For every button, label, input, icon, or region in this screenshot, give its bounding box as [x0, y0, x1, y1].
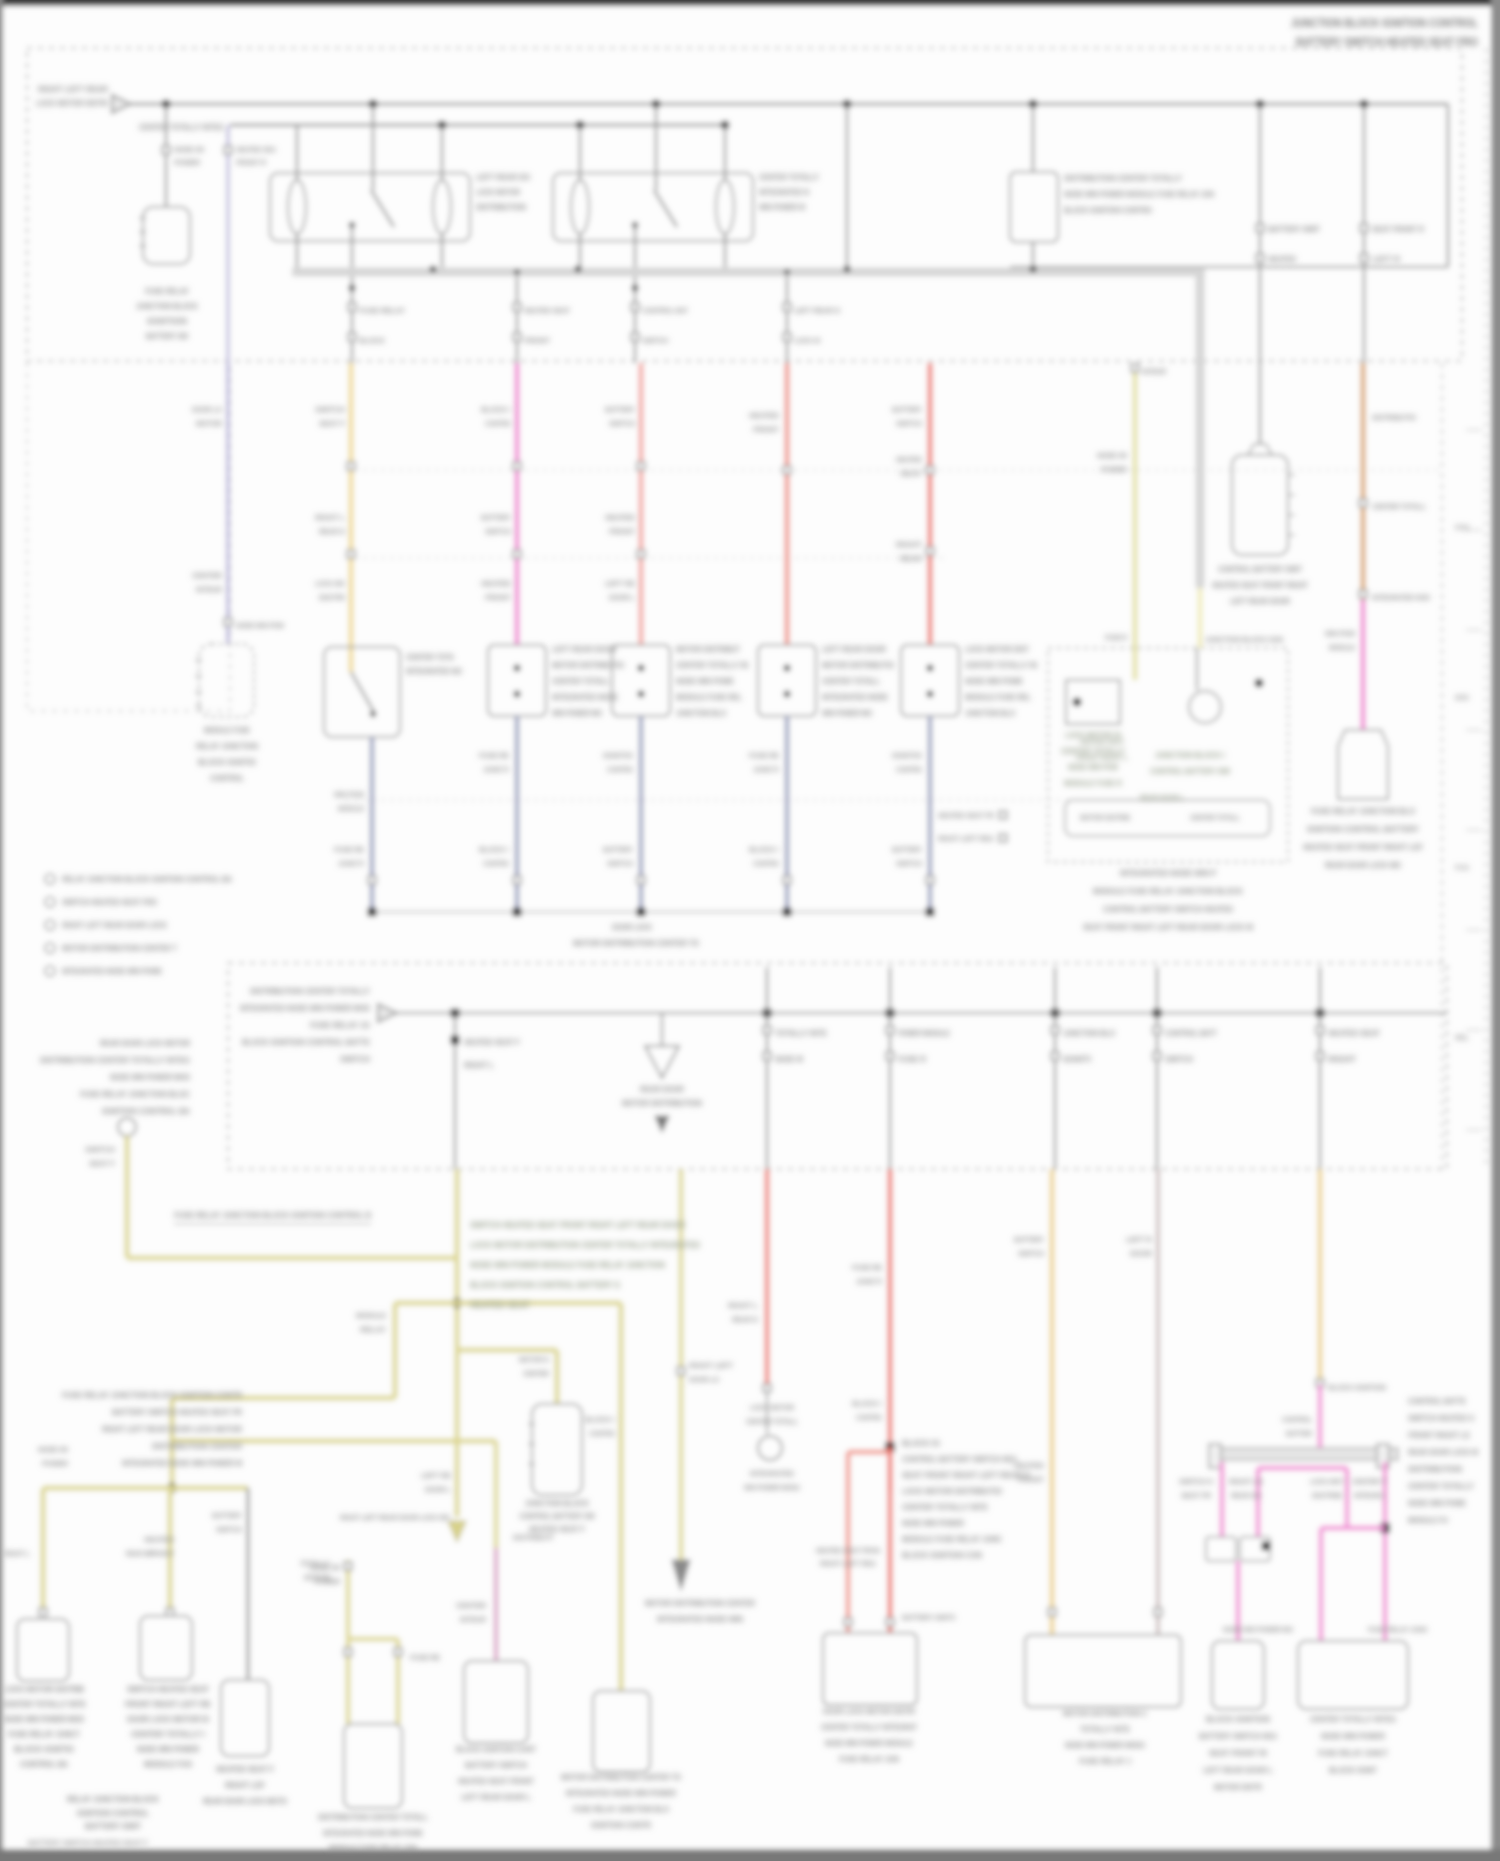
- svg-text:HEATED SEAT FR: HEATED SEAT FR: [938, 811, 995, 820]
- svg-text:FRONT: FRONT: [753, 425, 779, 434]
- svg-text:NODE WIN POW: NODE WIN POW: [236, 621, 285, 630]
- svg-text:IGNITION CONTROL BA: IGNITION CONTROL BA: [102, 1106, 190, 1116]
- svg-text:WIN POW: WIN POW: [1325, 629, 1356, 638]
- svg-text:FUSE RELAY JUN: FUSE RELAY JUN: [839, 1755, 899, 1764]
- svg-text:IGNITION CONTROL: IGNITION CONTROL: [77, 1808, 149, 1818]
- svg-text:DISTRIBUTIO: DISTRIBUTIO: [1372, 413, 1416, 422]
- svg-text:MODULE FUSE RELAY JUNC: MODULE FUSE RELAY JUNC: [902, 1534, 1002, 1544]
- svg-text:BATTER: BATTER: [1286, 1429, 1313, 1438]
- svg-text:FUSE RELAY JUNCT: FUSE RELAY JUNCT: [1318, 1749, 1388, 1758]
- svg-text:HEATED SEAT F: HEATED SEAT F: [216, 1764, 274, 1774]
- svg-text:LEFT REAR DOOR L: LEFT REAR DOOR L: [1203, 1766, 1273, 1775]
- svg-text:DISTRI: DISTRI: [319, 593, 345, 602]
- svg-text:DISTRIBUTI: DISTRIBUTI: [513, 1533, 553, 1542]
- svg-text:REAR DOOR LOCK M: REAR DOOR LOCK M: [1408, 1448, 1478, 1457]
- svg-text:LOCK MOTOR DIST: LOCK MOTOR DIST: [965, 645, 1029, 654]
- svg-text:HEATED SEAT F: HEATED SEAT F: [529, 1525, 585, 1534]
- svg-text:POW: POW: [1455, 525, 1469, 532]
- svg-text:IGNITION CONTROL BATTERY: IGNITION CONTROL BATTERY: [1307, 824, 1419, 834]
- svg-text:DISTRIBUTION CENTER TOTALLY IN: DISTRIBUTION CENTER TOTALLY INTEG: [40, 1055, 190, 1065]
- svg-text:HEATED: HEATED: [896, 455, 922, 464]
- svg-text:INTEGRATED NODE: INTEGRATED NODE: [822, 693, 889, 702]
- svg-text:NODE WIN POWER MODULE: NODE WIN POWER MODULE: [825, 1739, 914, 1748]
- svg-text:RIGHT LEFT REAR DOOR LOCK MO: RIGHT LEFT REAR DOOR LOCK MO: [340, 1513, 450, 1522]
- svg-text:IGNITI: IGNITI: [1063, 1055, 1091, 1064]
- svg-text:INTEGR: INTEGR: [304, 1573, 331, 1582]
- svg-text:SWITCH: SWITCH: [896, 419, 922, 428]
- svg-text:CONTROL BA: CONTROL BA: [20, 1759, 68, 1769]
- svg-text:FRONT RIGHT LEFT RE: FRONT RIGHT LEFT RE: [125, 1699, 211, 1709]
- svg-text:RIGHT L: RIGHT L: [4, 1551, 31, 1558]
- svg-text:INTEGRATED NODE WIN P: INTEGRATED NODE WIN P: [1120, 868, 1216, 878]
- svg-text:POWER: POWER: [1101, 465, 1128, 474]
- svg-text:FUSE R: FUSE R: [1105, 635, 1127, 642]
- svg-text:BATTERY: BATTERY: [603, 845, 633, 854]
- svg-text:HEATED SEAT FRON: HEATED SEAT FRON: [816, 1546, 880, 1555]
- svg-text:CENTER TOTALLY INTEG: CENTER TOTALLY INTEG: [139, 123, 224, 132]
- svg-text:INTEGRATED NODE WIN: INTEGRATED NODE WIN: [657, 1615, 743, 1624]
- svg-text:MODULE FUS: MODULE FUS: [144, 1759, 192, 1769]
- svg-text:INTEGRATED NODE: INTEGRATED NODE: [552, 693, 619, 702]
- svg-text:LEFT REAR DO: LEFT REAR DO: [476, 173, 530, 182]
- svg-text:INTEGRATED NODE WIN POWER MOD: INTEGRATED NODE WIN POWER MOD: [240, 1003, 370, 1013]
- svg-text:CONTROL: CONTROL: [210, 774, 244, 783]
- svg-text:CENTER TOTALLY: CENTER TOTALLY: [759, 173, 820, 182]
- svg-text:MOTOR DISTRIB: MOTOR DISTRIB: [1080, 815, 1130, 822]
- svg-text:REAR DOOR L: REAR DOOR L: [1140, 793, 1184, 802]
- svg-text:MOTOR DISTRIBUTION CENTER TO: MOTOR DISTRIBUTION CENTER TO: [573, 938, 699, 948]
- svg-text:BATTERY: BATTERY: [481, 513, 511, 522]
- svg-text:FUSE RELAY JU: FUSE RELAY JU: [310, 1020, 370, 1030]
- svg-text:BATTERY SWITCH HEATED SEAT FR: BATTERY SWITCH HEATED SEAT FR: [112, 1407, 242, 1417]
- svg-text:RELAY JUNCTION: RELAY JUNCTION: [196, 742, 258, 751]
- svg-text:DISTRIBUTION CENTER: DISTRIBUTION CENTER: [152, 1441, 242, 1451]
- svg-text:MOTOR DISTRIBUTION CENTER T: MOTOR DISTRIBUTION CENTER T: [62, 944, 177, 953]
- svg-text:BLOCK I: BLOCK I: [481, 405, 511, 414]
- svg-text:FUSE RE: FUSE RE: [749, 751, 779, 760]
- svg-text:CENTER: CENTER: [456, 1601, 487, 1610]
- svg-text:SWITCH: SWITCH: [216, 1525, 242, 1534]
- svg-text:REAR D: REAR D: [319, 527, 346, 536]
- svg-text:HEATED SEAT FRONT RIGHT LEF: HEATED SEAT FRONT RIGHT LEF: [1303, 842, 1423, 852]
- svg-text:REAR: REAR: [900, 554, 923, 563]
- svg-text:INTEGR: INTEGR: [196, 585, 223, 594]
- svg-text:BATTERY: BATTERY: [605, 405, 635, 414]
- svg-text:INTEGRATED NODE WIN POWE: INTEGRATED NODE WIN POWE: [62, 967, 163, 976]
- svg-text:SWITCH: SWITCH: [1018, 1249, 1044, 1258]
- svg-text:MODULE FUSE RELAY JUNCTION BLO: MODULE FUSE RELAY JUNCTION BLOCK: [1093, 886, 1244, 896]
- svg-text:DOOR: DOOR: [1130, 1249, 1153, 1258]
- svg-text:DISTRIB: DISTRIB: [1312, 1491, 1343, 1500]
- svg-text:CONTRO: CONTRO: [589, 1429, 615, 1438]
- svg-text:SWITCH HEATED SEAT FRO: SWITCH HEATED SEAT FRO: [62, 898, 157, 907]
- svg-text:BATTERY SWITCH HEATED SEAT F: BATTERY SWITCH HEATED SEAT F: [28, 1839, 148, 1848]
- svg-text:CENTER TOTA: CENTER TOTA: [406, 653, 454, 662]
- svg-text:BATTERY: BATTERY: [892, 405, 922, 414]
- svg-text:REL: REL: [1455, 1035, 1470, 1042]
- svg-text:POWER: POWER: [42, 1459, 69, 1468]
- svg-text:REAR DO: REAR DO: [126, 1551, 152, 1558]
- svg-text:TOTALLY INTE: TOTALLY INTE: [1080, 1725, 1131, 1734]
- svg-text:INTEGR: INTEGR: [1142, 367, 1166, 376]
- svg-text:JUNCTI: JUNCTI: [338, 859, 364, 868]
- svg-text:POWER: POWER: [174, 158, 201, 167]
- svg-text:SEAT FR: SEAT FR: [1181, 1491, 1212, 1500]
- svg-text:BATTERY SWITCH HEA: BATTERY SWITCH HEA: [1199, 1732, 1277, 1741]
- svg-text:SWITCH: SWITCH: [340, 1054, 370, 1064]
- svg-text:CONTROL: CONTROL: [1282, 1415, 1312, 1424]
- svg-text:RIGHT: RIGHT: [1328, 1055, 1356, 1064]
- svg-text:SEAT F: SEAT F: [319, 419, 345, 428]
- svg-text:MODULE: MODULE: [1329, 643, 1355, 652]
- svg-text:NODE WIN POWER MO: NODE WIN POWER MO: [1223, 1625, 1293, 1634]
- svg-text:REAR DOOR LOCK MOTO: REAR DOOR LOCK MOTO: [203, 1796, 287, 1806]
- svg-text:SWITCH: SWITCH: [609, 419, 635, 428]
- svg-text:BLOCK IGNIT: BLOCK IGNIT: [1329, 1766, 1377, 1775]
- svg-text:NODE WIN POWER: NODE WIN POWER: [902, 1518, 964, 1528]
- svg-text:CENTER TOTALL: CENTER TOTALL: [1190, 815, 1241, 822]
- svg-text:MODULE: MODULE: [338, 804, 364, 813]
- svg-text:JUNCTION BLO: JUNCTION BLO: [965, 709, 1015, 718]
- svg-text:FUSE RELAY JUNCTION BLOCK IGNI: FUSE RELAY JUNCTION BLOCK IGNITION CONTR: [62, 1390, 242, 1400]
- svg-text:MOTOR D: MOTOR D: [519, 1355, 549, 1364]
- svg-text:INTEGRATED: INTEGRATED: [750, 1469, 795, 1478]
- svg-text:BLOCK IG: BLOCK IG: [902, 1438, 940, 1448]
- svg-text:BATTERY SW: BATTERY SW: [146, 332, 188, 341]
- svg-text:BLOCK IGNITION: BLOCK IGNITION: [1328, 1383, 1386, 1392]
- svg-text:FUSE RE: FUSE RE: [852, 1263, 882, 1272]
- svg-text:HEATED: HEATED: [481, 579, 512, 588]
- svg-text:BLOCK I: BLOCK I: [749, 845, 779, 854]
- svg-text:LOCK MOTOR DISTRIB: LOCK MOTOR DISTRIB: [4, 1684, 84, 1694]
- svg-text:RELAY JUNCTION BLOCK: RELAY JUNCTION BLOCK: [67, 1794, 160, 1804]
- svg-text:SEAT FRONT RI: SEAT FRONT RI: [1209, 1749, 1267, 1758]
- svg-text:INTEGRA: INTEGRA: [1354, 1491, 1385, 1500]
- svg-text:CENTER TOTALLY INTE: CENTER TOTALLY INTE: [902, 1502, 988, 1512]
- svg-text:BATTERY SWITCH HEATED SEAT FRO: BATTERY SWITCH HEATED SEAT FRO: [1296, 37, 1478, 49]
- svg-text:SWITCH HEATED SEAT: SWITCH HEATED SEAT: [127, 1684, 210, 1694]
- svg-text:SWITCH: SWITCH: [607, 859, 633, 868]
- svg-text:MODULE FUSE R: MODULE FUSE R: [1064, 779, 1122, 788]
- svg-text:NODE WIN POWER MODU: NODE WIN POWER MODU: [1065, 1741, 1145, 1750]
- svg-text:CONTRO: CONTRO: [485, 419, 511, 428]
- svg-text:LEFT REAR DOOR: LEFT REAR DOOR: [822, 645, 886, 654]
- svg-text:FUSE RELAY JUNC: FUSE RELAY JUNC: [1368, 1625, 1429, 1634]
- svg-text:LEFT REAR DOOR: LEFT REAR DOOR: [552, 645, 616, 654]
- svg-text:BATTERY SWIT: BATTERY SWIT: [85, 1821, 142, 1831]
- svg-text:BATTERY: BATTERY: [212, 1511, 242, 1520]
- svg-text:INTEGR: INTEGR: [460, 1615, 487, 1624]
- svg-text:HEATED: HEATED: [144, 1535, 175, 1544]
- svg-text:CENTER: CENTER: [523, 1369, 549, 1378]
- svg-text:LOCK MOTOR: LOCK MOTOR: [476, 188, 520, 197]
- svg-text:NODE WIN POWER MODULE FUSE REL: NODE WIN POWER MODULE FUSE RELAY JUN: [1064, 190, 1214, 199]
- svg-text:LOCK MOTOR DISTRI: LOCK MOTOR DISTRI: [36, 99, 108, 108]
- svg-text:JUNCTION BLOCK: JUNCTION BLOCK: [136, 302, 198, 311]
- svg-text:CONTROL BATTERY SWI: CONTROL BATTERY SWI: [1150, 767, 1230, 776]
- svg-text:RIGHT: RIGHT: [896, 540, 922, 549]
- svg-text:FUSE R: FUSE R: [898, 1055, 926, 1064]
- svg-text:BLOCK I: BLOCK I: [585, 1415, 615, 1424]
- svg-text:MOTOR DISTRIBUTIO: MOTOR DISTRIBUTIO: [552, 661, 624, 670]
- svg-text:CENTER: CENTER: [192, 571, 223, 580]
- svg-text:JUNCTI: JUNCTI: [856, 1277, 882, 1286]
- svg-text:RIGHT LEFT REA: RIGHT LEFT REA: [820, 1559, 877, 1568]
- svg-text:HEATED: HEATED: [749, 411, 780, 420]
- svg-text:FRONT: FRONT: [524, 336, 550, 345]
- svg-text:MODULE FU: MODULE FU: [1408, 1516, 1448, 1525]
- svg-text:RIGHT LEFT REAR: RIGHT LEFT REAR: [38, 85, 108, 94]
- svg-text:CONTRO: CONTRO: [483, 859, 509, 868]
- svg-text:BLOCK IGNITIO: BLOCK IGNITIO: [198, 758, 256, 767]
- svg-text:RIGHT L: RIGHT L: [728, 1301, 758, 1310]
- svg-text:NODE WI: NODE WI: [38, 1445, 68, 1454]
- svg-text:DOOR LO: DOOR LO: [192, 405, 222, 414]
- svg-text:REAR DOOR LOCK MOTOR: REAR DOOR LOCK MOTOR: [100, 1038, 190, 1048]
- svg-text:JUNCTION BLOCK I: JUNCTION BLOCK I: [1155, 751, 1225, 760]
- svg-text:RIGHT L: RIGHT L: [315, 513, 345, 522]
- svg-text:BATTERY SWITC: BATTERY SWITC: [902, 1613, 957, 1622]
- svg-text:BLOCK IGNITION CON: BLOCK IGNITION CON: [902, 1550, 982, 1560]
- svg-text:NODE WIN POW: NODE WIN POW: [1068, 763, 1118, 772]
- svg-text:CONTRO: CONTRO: [856, 1413, 882, 1422]
- svg-text:SEAT FRONT RIGHT LEFT REAR DOO: SEAT FRONT RIGHT LEFT REAR DOOR LOCK M: [1083, 922, 1253, 932]
- svg-text:NODE WIN POWE: NODE WIN POWE: [1408, 1499, 1467, 1508]
- svg-text:FUSE RELAY: FUSE RELAY: [359, 306, 405, 315]
- svg-text:RIGHT LEFT REAR DOOR LOCK: RIGHT LEFT REAR DOOR LOCK: [62, 921, 167, 930]
- svg-text:FUSE RELAY JUNCTION BLO: FUSE RELAY JUNCTION BLO: [573, 1805, 669, 1814]
- svg-text:NODE WIN POWER MODULE FUSE REL: NODE WIN POWER MODULE FUSE RELAY JUNCTIO…: [470, 1260, 665, 1270]
- svg-text:BLOCK IGNITION: BLOCK IGNITION: [1206, 1715, 1270, 1724]
- svg-text:BATTERY SWIT: BATTERY SWIT: [1268, 225, 1320, 234]
- svg-text:IGNITIO: IGNITIO: [603, 751, 633, 760]
- svg-text:SWITCH: SWITCH: [485, 527, 511, 536]
- svg-text:BLOCK IGNITION CONTROL BATTE: BLOCK IGNITION CONTROL BATTE: [242, 1037, 370, 1047]
- svg-text:LEFT RE: LEFT RE: [605, 579, 635, 588]
- svg-text:LEFT R: LEFT R: [1126, 1235, 1153, 1244]
- svg-text:NODE WI: NODE WI: [174, 145, 204, 154]
- svg-text:SEAT FRONT RIGHT LEFT REAR D: SEAT FRONT RIGHT LEFT REAR D: [902, 1470, 1030, 1480]
- svg-text:CENTER TOTALL: CENTER TOTALL: [1372, 502, 1426, 511]
- svg-text:IGNITIO: IGNITIO: [892, 751, 922, 760]
- svg-text:MODULE: MODULE: [356, 1311, 386, 1320]
- svg-text:SEAT F: SEAT F: [89, 1159, 115, 1168]
- svg-text:CENTER TOTALLY INTEG: CENTER TOTALLY INTEG: [1310, 1715, 1396, 1724]
- svg-text:DOOR LOCK: DOOR LOCK: [612, 922, 653, 932]
- svg-text:FRONT RIGHT LE: FRONT RIGHT LE: [1408, 1431, 1471, 1440]
- svg-text:RIGHT LEFT REA: RIGHT LEFT REA: [938, 834, 995, 843]
- svg-text:MOD: MOD: [1455, 695, 1469, 702]
- svg-text:BLOCK I: BLOCK I: [479, 845, 509, 854]
- svg-text:FUSE RE: FUSE RE: [479, 751, 509, 760]
- svg-text:DISTRIBUTION CENTER TOTALL: DISTRIBUTION CENTER TOTALL: [318, 1813, 428, 1822]
- svg-text:CONTROL BATTERY SW: CONTROL BATTERY SW: [520, 1512, 595, 1521]
- svg-text:MODULE FUSE REL: MODULE FUSE REL: [965, 693, 1031, 702]
- svg-text:RIGHT LEFT REAR DOOR LOCK MOTO: RIGHT LEFT REAR DOOR LOCK MOTOR: [102, 1424, 242, 1434]
- svg-text:WIN POW: WIN POW: [334, 790, 365, 799]
- svg-text:FRONT: FRONT: [485, 593, 511, 602]
- svg-text:BLOCK IGNITIO: BLOCK IGNITIO: [14, 1744, 74, 1754]
- svg-text:POWER MODULE: POWER MODULE: [898, 1029, 951, 1038]
- svg-text:FUSE RELAY J: FUSE RELAY J: [1079, 1757, 1131, 1766]
- svg-text:CENTER TOTALLY INTE: CENTER TOTALLY INTE: [2, 1699, 86, 1709]
- svg-text:TOTALLY INTE: TOTALLY INTE: [775, 1029, 828, 1038]
- svg-text:CONTROL BAT: CONTROL BAT: [642, 306, 688, 315]
- svg-text:CONTRO: CONTRO: [896, 765, 922, 774]
- svg-text:CONTRO: CONTRO: [753, 859, 779, 868]
- svg-text:RIGHT LEF: RIGHT LEF: [225, 1780, 265, 1790]
- svg-text:CENTER TOTALL: CENTER TOTALL: [746, 1417, 798, 1426]
- svg-text:DISTRIBUTION: DISTRIBUTION: [1408, 1465, 1462, 1474]
- svg-text:SEAT: SEAT: [900, 469, 922, 478]
- svg-text:LEFT R: LEFT R: [1372, 255, 1400, 264]
- svg-text:CENTER TOTALL: CENTER TOTALL: [822, 677, 880, 686]
- svg-text:FUSE RELAY: FUSE RELAY: [145, 287, 190, 296]
- svg-text:RIGHT LEFT: RIGHT LEFT: [689, 1361, 733, 1370]
- svg-text:LOCK MO: LOCK MO: [315, 579, 345, 588]
- svg-text:CENTER TOTALLY: CENTER TOTALLY: [1408, 1482, 1475, 1491]
- svg-text:JUNCTI: JUNCTI: [483, 765, 509, 774]
- svg-text:NODE WIN POWER MOD: NODE WIN POWER MOD: [4, 1714, 84, 1724]
- svg-text:BLOCK IGNITION CONT: BLOCK IGNITION CONT: [456, 1745, 536, 1754]
- svg-text:RELAY: RELAY: [360, 1325, 386, 1334]
- svg-text:BATTERY: BATTERY: [892, 845, 922, 854]
- svg-text:LEFT REAR DOOR L: LEFT REAR DOOR L: [461, 1793, 531, 1802]
- svg-text:RIGHT L: RIGHT L: [464, 1061, 494, 1070]
- svg-text:NODE WI: NODE WI: [1097, 451, 1127, 460]
- svg-text:CENTER TOTALLY IN: CENTER TOTALLY IN: [676, 661, 748, 670]
- svg-text:DOOR L: DOOR L: [609, 593, 635, 602]
- svg-text:IGNITION CONTR: IGNITION CONTR: [591, 1821, 651, 1830]
- svg-text:BLOCK IGNITION CONTRO: BLOCK IGNITION CONTRO: [1064, 206, 1152, 215]
- svg-text:LOCK MOT: LOCK MOT: [1310, 1477, 1344, 1486]
- svg-text:BATTERY: BATTERY: [1014, 1235, 1044, 1244]
- svg-text:CONTROL BATTERY SWITCH HEATED: CONTROL BATTERY SWITCH HEATED: [1103, 904, 1233, 914]
- svg-text:DOOR LOCK MOTOR DI: DOOR LOCK MOTOR DI: [127, 1714, 209, 1724]
- svg-text:MOTOR: MOTOR: [196, 419, 223, 428]
- svg-text:MOTOR DISTRIBUTION CENTER TO: MOTOR DISTRIBUTION CENTER TO: [561, 1773, 681, 1782]
- svg-text:CONTRO: CONTRO: [607, 765, 633, 774]
- svg-text:JUNCTION BLO: JUNCTION BLO: [1063, 1029, 1115, 1038]
- svg-text:FUSE RE: FUSE RE: [334, 845, 364, 854]
- svg-text:MOTOR DISTRIBUTIO: MOTOR DISTRIBUTIO: [822, 661, 894, 670]
- svg-text:JUNCTION BLOCK IGNI: JUNCTION BLOCK IGNI: [1205, 635, 1283, 644]
- svg-text:SWITCH: SWITCH: [1165, 1055, 1193, 1064]
- svg-text:DOOR LO: DOOR LO: [689, 1375, 719, 1384]
- svg-text:FRONT: FRONT: [1018, 1475, 1044, 1484]
- svg-text:SWITCH: SWITCH: [642, 336, 668, 345]
- svg-text:HEATED: HEATED: [605, 513, 636, 522]
- svg-text:INTEGRATED N: INTEGRATED N: [759, 188, 809, 197]
- svg-text:CENTER TOTALL: CENTER TOTALL: [552, 677, 610, 686]
- svg-text:FUSE RELAY JUNCTION BLOC: FUSE RELAY JUNCTION BLOC: [80, 1089, 190, 1099]
- svg-text:FUSE RELAY JUNCT: FUSE RELAY JUNCT: [8, 1729, 81, 1739]
- svg-text:LEFT REAR DOOR: LEFT REAR DOOR: [1230, 597, 1290, 606]
- svg-text:TOTALLY: TOTALLY: [300, 1559, 330, 1568]
- svg-text:NODE WIN POWE: NODE WIN POWE: [965, 677, 1024, 686]
- svg-text:IGNITION: IGNITION: [147, 317, 187, 326]
- svg-text:LOCK MOTOR DISTRIBUTION CENTER: LOCK MOTOR DISTRIBUTION CENTER TOTALLY I…: [470, 1240, 700, 1250]
- svg-text:RELAY JUNCTION BLOCK IGNITION: RELAY JUNCTION BLOCK IGNITION CONTROL BA: [62, 875, 232, 884]
- svg-text:MOTOR DISTRIBUT: MOTOR DISTRIBUT: [676, 645, 740, 654]
- svg-text:LEFT RE: LEFT RE: [421, 1471, 451, 1480]
- svg-text:CONTROL BATTE: CONTROL BATTE: [1408, 1397, 1467, 1406]
- svg-text:NODE WIN POWE: NODE WIN POWE: [676, 677, 735, 686]
- svg-text:SEAT FRONT R: SEAT FRONT R: [1372, 225, 1424, 234]
- svg-text:INTEGRATED NODE WIN POWER: INTEGRATED NODE WIN POWER: [566, 1789, 676, 1798]
- svg-text:BLOCK I: BLOCK I: [852, 1399, 882, 1408]
- svg-text:REAR DOOR LOCK MO: REAR DOOR LOCK MO: [1325, 860, 1401, 870]
- svg-text:FUS: FUS: [1455, 865, 1469, 872]
- svg-text:LOCK MOTOR: LOCK MOTOR: [750, 1403, 795, 1412]
- svg-text:INTEGRATED NOD: INTEGRATED NOD: [1372, 593, 1430, 602]
- svg-text:SWITCH H: SWITCH H: [1179, 1477, 1213, 1486]
- svg-text:LOCK MOTOR DISTRIBUTIO: LOCK MOTOR DISTRIBUTIO: [902, 1486, 1002, 1496]
- svg-text:SWITCH: SWITCH: [315, 405, 345, 414]
- svg-text:MOTOR DISTR: MOTOR DISTR: [1214, 1783, 1262, 1792]
- svg-text:JUNCTION BLOCK: JUNCTION BLOCK: [525, 1499, 589, 1508]
- svg-text:CENTER TOTALLY IN: CENTER TOTALLY IN: [965, 661, 1037, 670]
- svg-text:HEATED SEAT: HEATED SEAT: [1328, 1029, 1380, 1038]
- svg-text:HEATED SEAT FRONT RIGHT: HEATED SEAT FRONT RIGHT: [1212, 581, 1308, 590]
- svg-text:FUSE RE: FUSE RE: [410, 1653, 440, 1662]
- svg-text:JUNCTION BLO: JUNCTION BLO: [676, 709, 726, 718]
- svg-text:MOTOR DISTRIBUTION: MOTOR DISTRIBUTION: [622, 1099, 702, 1108]
- svg-text:MODULE FUSE REL: MODULE FUSE REL: [676, 693, 742, 702]
- svg-text:MODULE FUSE: MODULE FUSE: [204, 726, 251, 735]
- svg-text:HEATED SEAT: HEATED SEAT: [1080, 737, 1124, 746]
- svg-text:BATTERY SWITCH: BATTERY SWITCH: [465, 1761, 527, 1770]
- svg-text:RIGHT LE: RIGHT LE: [1229, 1477, 1263, 1486]
- svg-text:SWITCH: SWITCH: [896, 859, 922, 868]
- svg-text:CONTROL BATTERY SWITCH HEA: CONTROL BATTERY SWITCH HEA: [902, 1454, 1017, 1464]
- svg-text:HEATED SEA: HEATED SEA: [236, 145, 276, 154]
- svg-text:HEATED: HEATED: [1014, 1461, 1045, 1470]
- svg-text:DOOR L: DOOR L: [425, 1485, 451, 1494]
- svg-text:REAR DOOR: REAR DOOR: [640, 1085, 684, 1094]
- svg-text:CONTROL BATT: CONTROL BATT: [1165, 1029, 1217, 1038]
- svg-text:LEFT REAR D: LEFT REAR D: [794, 306, 841, 315]
- svg-text:INTEGRATED NO: INTEGRATED NO: [406, 667, 462, 676]
- svg-text:NODE WIN POWER: NODE WIN POWER: [137, 1744, 199, 1754]
- svg-text:CENTER TOTALLY INTEGRAT: CENTER TOTALLY INTEGRAT: [821, 1723, 917, 1732]
- svg-text:FUSE RELAY JUNCTION BLOCK IGNI: FUSE RELAY JUNCTION BLOCK IGNITION CONTR…: [174, 1210, 371, 1220]
- svg-text:FRONT: FRONT: [609, 527, 635, 536]
- svg-text:HEATED SEAT: HEATED SEAT: [524, 306, 570, 315]
- svg-text:DOOR LOCK MOTOR DISTRI: DOOR LOCK MOTOR DISTRI: [823, 1707, 915, 1716]
- svg-text:NODE WIN POWER MOD: NODE WIN POWER MOD: [110, 1072, 190, 1082]
- svg-text:DISTRIBUTION CENTER TOTALLY: DISTRIBUTION CENTER TOTALLY: [250, 986, 370, 996]
- svg-text:HEATED SEAT FRONT: HEATED SEAT FRONT: [458, 1777, 534, 1786]
- svg-text:NODE W: NODE W: [775, 1055, 803, 1064]
- svg-text:FRONT R: FRONT R: [236, 158, 267, 167]
- svg-text:WIN POWER MO: WIN POWER MO: [552, 709, 602, 718]
- svg-text:FRONT RIGHT L: FRONT RIGHT L: [1076, 753, 1128, 762]
- svg-text:NODE WIN POWER: NODE WIN POWER: [1321, 1732, 1385, 1741]
- svg-text:REAR DO: REAR DO: [1231, 1491, 1261, 1500]
- svg-text:REAR D: REAR D: [732, 1315, 759, 1324]
- svg-text:SWITCH HEATED S: SWITCH HEATED S: [1408, 1414, 1475, 1423]
- svg-text:WIN POWER M: WIN POWER M: [759, 203, 805, 212]
- svg-text:MOTOR DISTRIBUTION C: MOTOR DISTRIBUTION C: [1063, 1709, 1147, 1718]
- svg-text:WIN POWER MODU: WIN POWER MODU: [744, 1483, 800, 1492]
- svg-text:JUNCTI: JUNCTI: [753, 765, 779, 774]
- svg-text:HEATED: HEATED: [1268, 255, 1296, 264]
- svg-text:JUNCTION BLOCK IGNITION CONTRO: JUNCTION BLOCK IGNITION CONTROL: [1291, 18, 1478, 30]
- svg-text:CONTROL BATTERY SWIT: CONTROL BATTERY SWIT: [1218, 565, 1302, 574]
- svg-text:INTEGRATED NODE WIN POWER M: INTEGRATED NODE WIN POWER M: [122, 1458, 242, 1468]
- svg-text:SWITCH: SWITCH: [85, 1145, 115, 1154]
